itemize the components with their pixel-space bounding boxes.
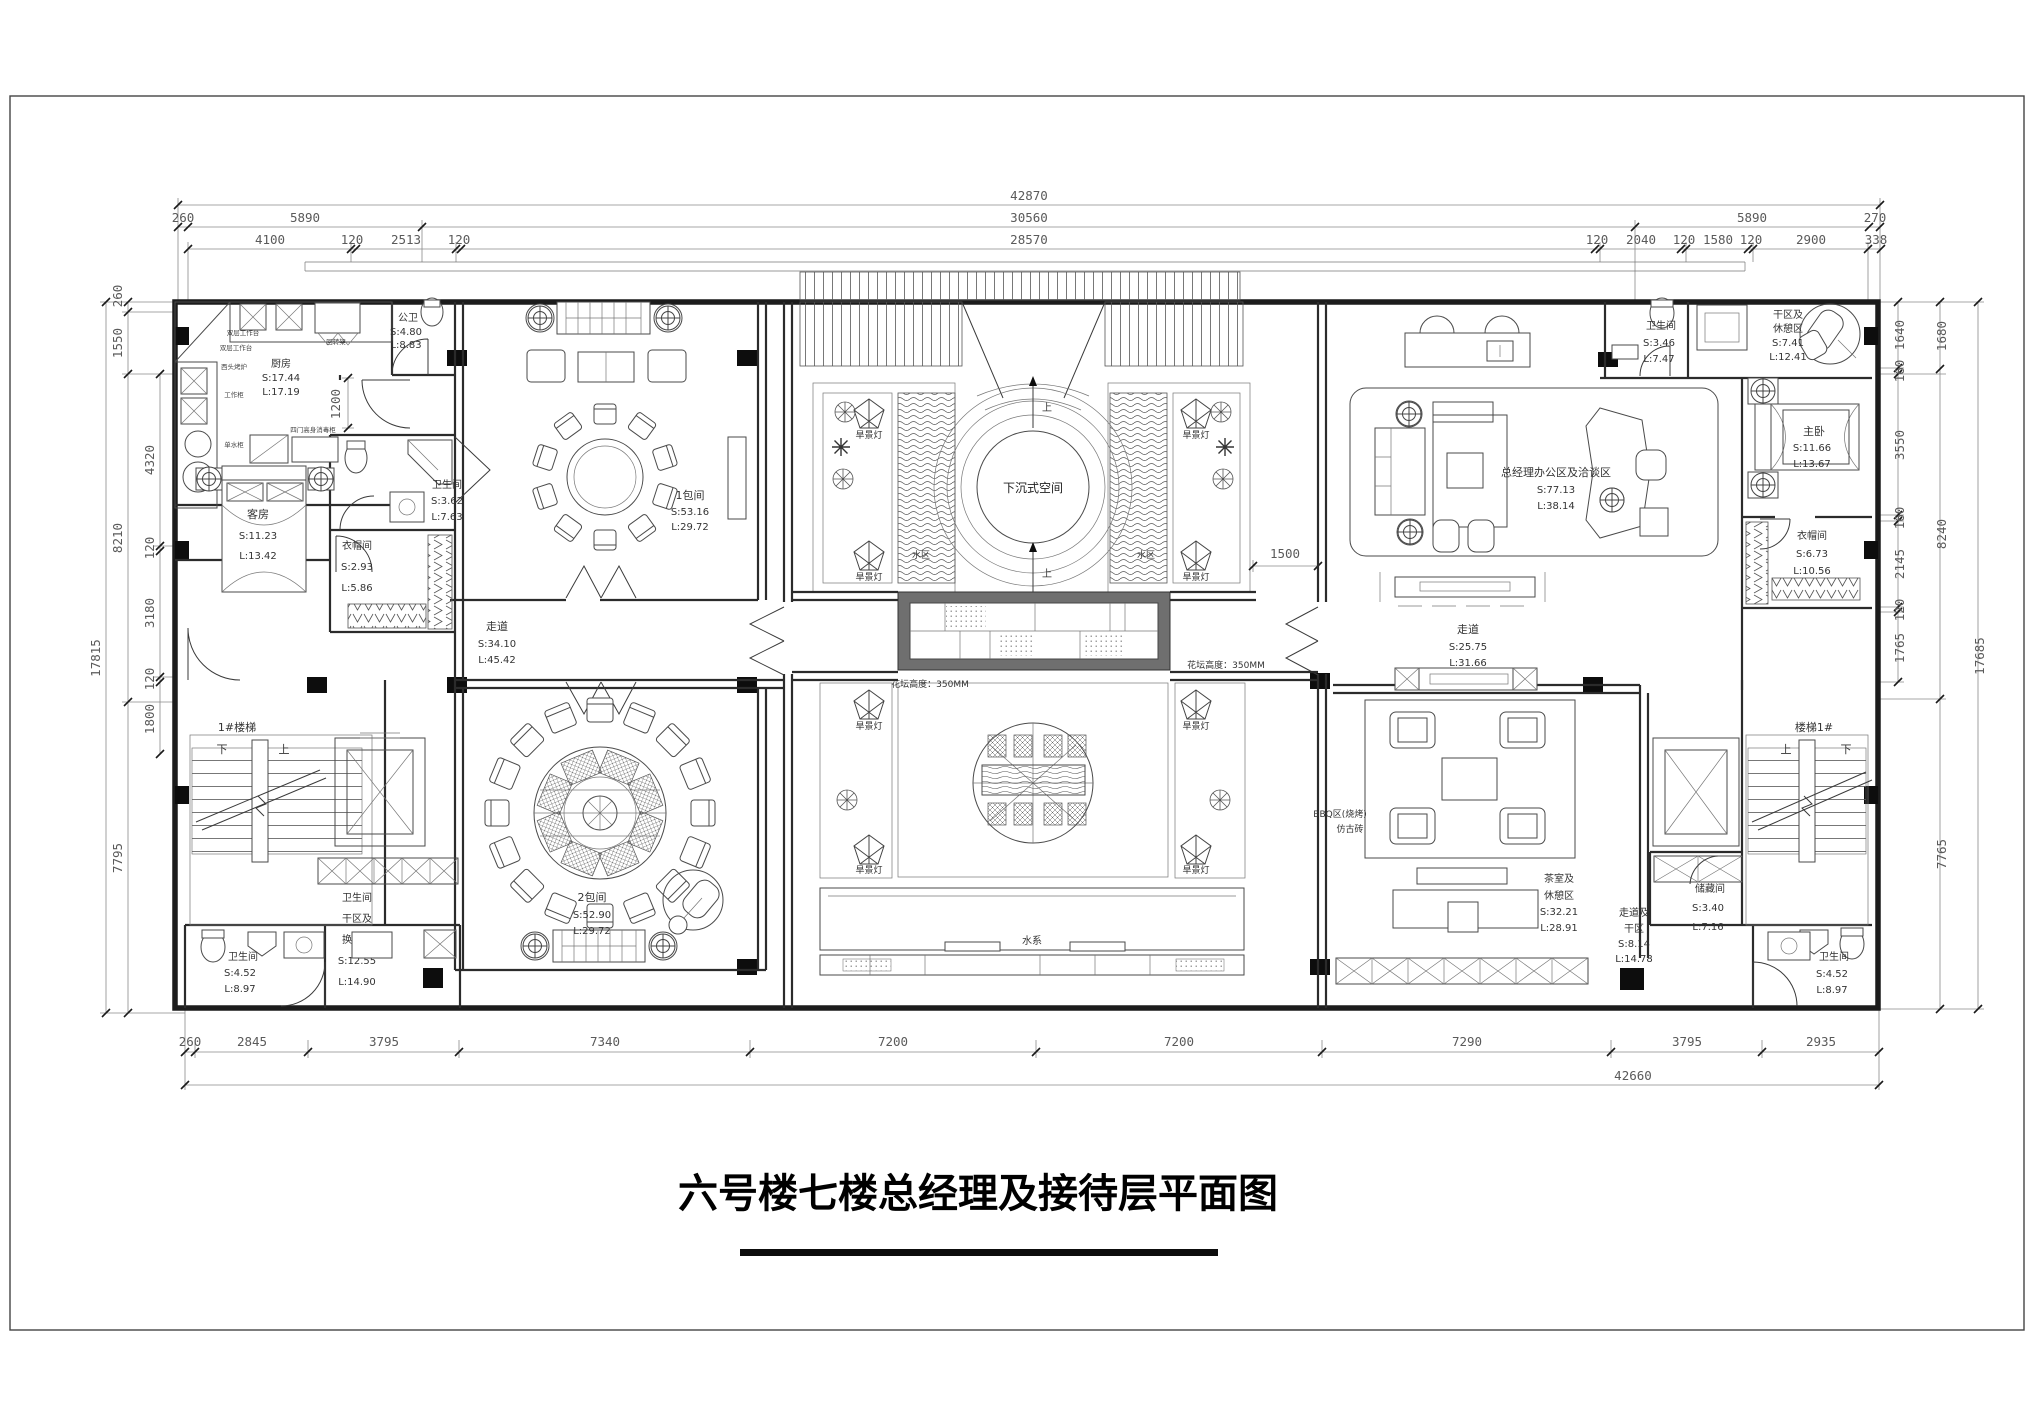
room-perimeter: L:28.91 [1540, 923, 1578, 934]
dim-door-opening: 1500 [1270, 546, 1300, 561]
room-perimeter: L:29.72 [671, 522, 709, 533]
room-area: S:4.52 [1816, 969, 1848, 980]
dim: 4320 [142, 445, 157, 475]
dimensions-bottom: 260 2845 3795 7340 7200 7200 7290 3795 2… [179, 1010, 1883, 1090]
corridor-dry-label2: 干区 [1624, 923, 1644, 935]
landscape-lamp-label: 旱景灯 [855, 865, 882, 876]
dim: 2845 [237, 1034, 267, 1049]
door-arc [1753, 962, 1797, 1006]
room-area: S:11.66 [1793, 443, 1831, 454]
guest-room: 客房 S:11.23 L:13.42 [188, 466, 334, 680]
up-label: 上 [1781, 743, 1792, 756]
dim: 7200 [878, 1034, 908, 1049]
room-perimeter: L:10.56 [1793, 566, 1831, 577]
room-area: S:3.40 [1692, 903, 1724, 914]
dim: 1800 [142, 704, 157, 734]
dim: 1640 [1892, 320, 1907, 350]
landscape-lamp-label: 旱景灯 [1182, 572, 1209, 583]
tea-room: 茶室及 休憩区 S:32.21 L:28.91 BBQ区(烧烤) 仿古砖 [1313, 700, 1578, 934]
dim: 8210 [110, 523, 125, 553]
brick-label: 仿古砖 [1336, 823, 1363, 835]
dim: 30560 [1010, 210, 1048, 225]
room-label2: 干区及 [342, 913, 372, 925]
sideboard [728, 437, 746, 519]
room-label1: 干区及 [1773, 309, 1803, 321]
dim: 4100 [255, 232, 285, 247]
room-label2: 休憩区 [1544, 889, 1574, 902]
dim: 8240 [1934, 519, 1949, 549]
cabinets-left [318, 858, 458, 884]
corridor-dry-label1: 走道及 [1619, 906, 1649, 919]
dim: 7290 [1452, 1034, 1482, 1049]
cloak-left: 衣帽间 S:2.93 L:5.86 [336, 535, 452, 629]
stair-block-right: 楼梯1# 上 下 储藏间 S:3.40 L:7.16 卫生间 S:4.52 L:… [1650, 680, 1872, 1008]
entry-steps-right [1105, 302, 1243, 366]
kitchen-item-label: 单水柜 [224, 440, 244, 449]
dim: 7765 [1934, 839, 1949, 869]
floor-plan-drawing: 42870 260 5890 30560 5890 270 4100 120 2… [0, 0, 2034, 1424]
dim: 7340 [590, 1034, 620, 1049]
dim: 28570 [1010, 232, 1048, 247]
corridor-left-area: S:34.10 [478, 639, 516, 650]
kitchen-item-label: 双层工作台 [227, 328, 260, 337]
room-label: 卫生间 [1646, 319, 1676, 332]
room-label: 公卫 [398, 313, 418, 324]
entry-steps-left [800, 302, 962, 366]
dim: 1550 [110, 328, 125, 358]
landscape-lamp-label: 旱景灯 [1182, 865, 1209, 876]
up-arrow-label: 上 [1042, 568, 1052, 580]
down-label: 下 [1841, 743, 1852, 756]
dining1-side-door [455, 437, 490, 503]
room-area: S:3.62 [431, 496, 463, 507]
room-perimeter: L:7.63 [431, 512, 462, 523]
room-label2: 休憩区 [1773, 322, 1803, 335]
dim: 120 [1740, 232, 1763, 247]
dim-bottom-total: 42660 [1614, 1068, 1652, 1083]
corridor-dry-perimeter: L:14.78 [1615, 954, 1653, 965]
dim: 3795 [369, 1034, 399, 1049]
dim: 2513 [391, 232, 421, 247]
desk-chair [1636, 450, 1666, 480]
room-perimeter: L:8.97 [224, 984, 255, 995]
dim: 120 [341, 232, 364, 247]
bath-bottom-left: 卫生间 S:4.52 L:8.97 [201, 930, 456, 1006]
kitchen-item-label: 四门高身消毒柜 [290, 425, 336, 434]
dim: 260 [110, 285, 125, 308]
bbq-zone-label: BBQ区(烧烤) [1313, 808, 1366, 820]
room-label: 卫生间 [342, 891, 372, 904]
room-label: 主卧 [1803, 425, 1825, 438]
room-perimeter: L:38.14 [1537, 501, 1575, 512]
door-arc [281, 962, 325, 1006]
door-arc [340, 496, 374, 530]
public-wc: 公卫 S:4.80 L:8.83 [390, 298, 443, 375]
room-label: 储藏间 [1695, 882, 1725, 895]
bath-bottom-right: 卫生间 S:4.52 L:8.97 [1753, 928, 1864, 1006]
room-label: 卫生间 [228, 950, 258, 963]
left-wing: 双层工作台 双层工作台 西头烤炉 回转架 工作柜 单水柜 四门高身消毒柜 双层工… [175, 298, 784, 970]
dim: 270 [1864, 210, 1887, 225]
room-perimeter: L:12.41 [1769, 352, 1807, 363]
dim: 160 [1892, 360, 1907, 383]
door-arc [188, 628, 240, 680]
room-perimeter: L:8.83 [390, 340, 421, 351]
room-area: S:77.13 [1537, 485, 1575, 496]
landscape-lamp-label: 旱景灯 [1182, 430, 1209, 441]
entry-steps-top [800, 272, 1240, 300]
room-perimeter: L:5.86 [341, 583, 372, 594]
room-perimeter: L:13.67 [1793, 459, 1831, 470]
kitchen-item-label: 双层工作台 [220, 343, 253, 352]
niche-door-arc [362, 380, 410, 428]
title-underline [740, 1249, 1218, 1256]
dim-top-total: 42870 [1010, 188, 1048, 203]
landscape-lamp-label: 旱景灯 [855, 430, 882, 441]
room-label: 1包间 [676, 489, 705, 502]
dim: 2935 [1806, 1034, 1836, 1049]
room-perimeter: L:13.42 [239, 551, 277, 562]
dim: 120 [142, 668, 157, 691]
room-label: 厨房 [271, 357, 291, 370]
title-block: 六号楼七楼总经理及接待层平面图 [678, 1171, 1278, 1256]
corridor-dry-area: S:8.14 [1618, 939, 1650, 950]
corridor-right-area: S:25.75 [1449, 642, 1487, 653]
room-label: 客房 [247, 507, 269, 521]
gm-office: 总经理办公区及洽谈区 S:77.13 L:38.14 [1350, 388, 1718, 556]
dim: 7795 [110, 843, 125, 873]
bar-area [1405, 316, 1530, 367]
dry-rest-area: 干区及 休憩区 S:7.41 L:12.41 [1697, 304, 1860, 364]
right-wing: 卫生间 S:3.46 L:7.47 干区及 休憩区 S:7.41 L:12.41… [1313, 298, 1872, 984]
kitchen-item-label: 西头烤炉 [221, 362, 248, 371]
room-label: 总经理办公区及洽谈区 [1501, 465, 1611, 479]
dim: 3550 [1892, 430, 1907, 460]
dim: 1765 [1892, 633, 1907, 663]
drawing-title: 六号楼七楼总经理及接待层平面图 [678, 1171, 1278, 1217]
water-zone-label: 水区 [1137, 549, 1155, 561]
dim: 260 [172, 210, 195, 225]
dim-niche: 1200 [328, 389, 343, 419]
room-label: 衣帽间 [342, 539, 372, 552]
dim: 2040 [1626, 232, 1656, 247]
dim-right-total: 17685 [1972, 637, 1987, 675]
water-feature: 水系 [820, 723, 1244, 975]
dim: 3795 [1672, 1034, 1702, 1049]
room-area: S:11.23 [239, 531, 277, 542]
room-area: S:3.46 [1643, 338, 1675, 349]
room-area: S:17.44 [262, 373, 300, 384]
corridor-left-label: 走道 [486, 619, 508, 633]
dim: 2145 [1892, 549, 1907, 579]
planter-height-label: 花坛高度：350MM [891, 678, 969, 690]
dim: 120 [142, 537, 157, 560]
room-area: S:53.16 [671, 507, 709, 518]
floor-plan-page: 42870 260 5890 30560 5890 270 4100 120 2… [0, 0, 2034, 1424]
room-perimeter: L:7.16 [1692, 922, 1723, 933]
kitchen-item-label: 回转架 [326, 337, 346, 346]
dimensions-right: 1640 160 3550 160 2145 120 1765 1680 824… [1878, 298, 1987, 1013]
room-perimeter: L:29.72 [573, 926, 611, 937]
room-perimeter: L:14.90 [338, 977, 376, 988]
dim: 120 [1586, 232, 1609, 247]
dim: 7200 [1164, 1034, 1194, 1049]
kitchen-item-label: 工作柜 [224, 390, 244, 399]
double-door-left [750, 607, 784, 675]
room-label: 卫生间 [432, 478, 462, 491]
landscape-lamp-label: 旱景灯 [1182, 721, 1209, 732]
landscape-lamp-label: 旱景灯 [855, 572, 882, 583]
room-area: S:52.90 [573, 910, 611, 921]
room-area: S:6.73 [1796, 549, 1828, 560]
cloak-right: 衣帽间 S:6.73 L:10.56 [1746, 522, 1860, 604]
dim: 338 [1865, 232, 1888, 247]
room-label1: 茶室及 [1544, 872, 1574, 885]
bath-top-right: 卫生间 S:3.46 L:7.47 [1612, 298, 1676, 376]
dining1-door [566, 566, 636, 598]
water-system-label: 水系 [1022, 935, 1042, 947]
up-label: 上 [279, 743, 290, 756]
up-arrow-label: 上 [1042, 402, 1052, 414]
sunken-space-label: 下沉式空间 [1003, 481, 1063, 495]
dim-left-total: 17815 [88, 639, 103, 677]
room-label: 衣帽间 [1797, 529, 1827, 542]
screen-wall: 花坛高度：350MM 花坛高度：350MM 1500 [891, 546, 1322, 690]
room-perimeter: L:7.47 [1643, 354, 1674, 365]
dim: 1680 [1934, 321, 1949, 351]
stair2-label: 楼梯1# [1795, 720, 1833, 734]
planter-height-label: 花坛高度：350MM [1187, 659, 1265, 671]
dim: 120 [1892, 599, 1907, 622]
room-perimeter: L:8.97 [1816, 985, 1847, 996]
room-area: S:2.93 [341, 562, 373, 573]
dim: 5890 [290, 210, 320, 225]
room-perimeter: L:17.19 [262, 387, 300, 398]
dim: 120 [1673, 232, 1696, 247]
corridor-right-perimeter: L:31.66 [1449, 658, 1487, 669]
bath-left: 卫生间 S:3.62 L:7.63 [340, 440, 463, 530]
dim: 3180 [142, 598, 157, 628]
corridor-left-perimeter: L:45.42 [478, 655, 516, 666]
room-area: S:4.80 [390, 327, 422, 338]
log-table [982, 765, 1085, 795]
room-label: 卫生间 [1819, 950, 1849, 963]
down-label: 下 [217, 743, 228, 756]
dim: 120 [448, 232, 471, 247]
landscape-lamp-label: 旱景灯 [855, 721, 882, 732]
dim: 5890 [1737, 210, 1767, 225]
double-door-right [1286, 607, 1318, 675]
dim: 160 [1892, 507, 1907, 530]
room-area: S:4.52 [224, 968, 256, 979]
cabinets-tea [1336, 958, 1588, 984]
stair-block-left: 1#楼梯 下 上 卫生间 干区及 换衣区 S:12.55 L:14.90 卫生间… [185, 680, 460, 1008]
dim: 2900 [1796, 232, 1826, 247]
dining-room-2: 2包间 S:52.90 L:29.72 [485, 698, 723, 962]
stair1-label: 1#楼梯 [218, 720, 256, 734]
dining-room-1: 1包间 S:53.16 L:29.72 [526, 302, 746, 550]
water-zone-label: 水区 [912, 549, 930, 561]
cabinets-storage [1654, 856, 1742, 882]
room-area: S:7.41 [1772, 338, 1804, 349]
corridor-right-label: 走道 [1457, 622, 1479, 636]
dimensions-left: 17815 260 1550 8210 7795 4320 120 3180 1… [88, 285, 185, 1017]
dim: 260 [179, 1034, 202, 1049]
dim: 1580 [1703, 232, 1733, 247]
room-area: S:32.21 [1540, 907, 1578, 918]
room-label: 2包间 [578, 891, 607, 904]
